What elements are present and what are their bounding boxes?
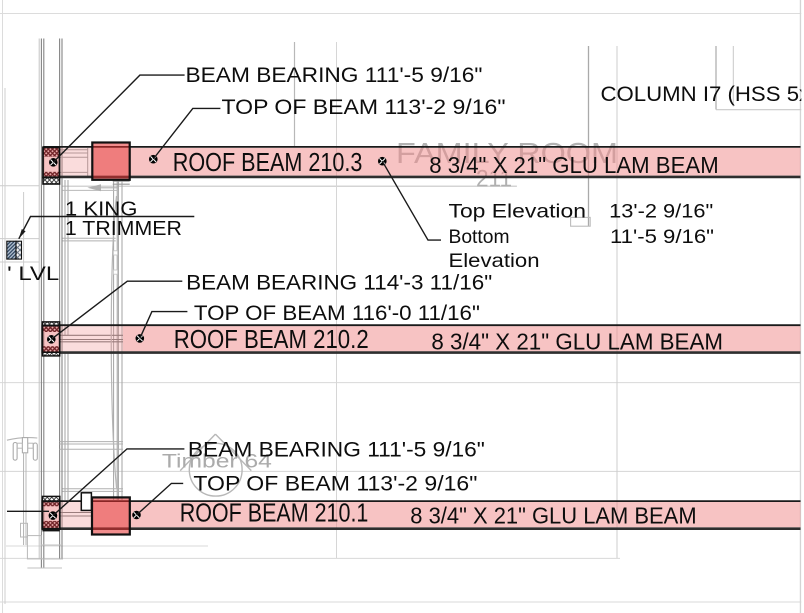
svg-text:BEAM BEARING 114'-3 11/16": BEAM BEARING 114'-3 11/16": [186, 271, 492, 295]
svg-text:Top Elevation: Top Elevation: [449, 201, 587, 223]
svg-text:ROOF BEAM 210.3: ROOF BEAM 210.3: [173, 147, 363, 177]
svg-text:8 3/4" X 21" GLU LAM BEAM: 8 3/4" X 21" GLU LAM BEAM: [410, 503, 696, 529]
svg-text:13'-2 9/16": 13'-2 9/16": [609, 201, 713, 223]
svg-text:TOP OF BEAM 113'-2 9/16": TOP OF BEAM 113'-2 9/16": [222, 95, 506, 119]
svg-text:COLUMN I7 (HSS 5x5: COLUMN I7 (HSS 5x5: [601, 82, 804, 106]
svg-text:BEAM BEARING 111'-5 9/16": BEAM BEARING 111'-5 9/16": [188, 437, 485, 461]
svg-text:8 3/4" X 21" GLU LAM BEAM: 8 3/4" X 21" GLU LAM BEAM: [431, 328, 723, 354]
svg-text:ROOF BEAM 210.1: ROOF BEAM 210.1: [180, 498, 369, 528]
svg-text:11'-5 9/16": 11'-5 9/16": [610, 226, 714, 248]
svg-text:' LVL: ' LVL: [7, 264, 59, 285]
svg-text:TOP OF BEAM 113'-2 9/16": TOP OF BEAM 113'-2 9/16": [193, 472, 477, 496]
svg-text:Bottom: Bottom: [449, 226, 510, 248]
svg-text:8 3/4" X 21" GLU LAM BEAM: 8 3/4" X 21" GLU LAM BEAM: [429, 152, 719, 178]
svg-text:ROOF BEAM 210.2: ROOF BEAM 210.2: [174, 324, 369, 354]
svg-text:TOP OF BEAM 116'-0 11/16": TOP OF BEAM 116'-0 11/16": [194, 301, 480, 325]
svg-text:Elevation: Elevation: [449, 250, 540, 272]
svg-text:1 TRIMMER: 1 TRIMMER: [65, 217, 182, 240]
svg-text:BEAM BEARING 111'-5 9/16": BEAM BEARING 111'-5 9/16": [186, 63, 483, 87]
